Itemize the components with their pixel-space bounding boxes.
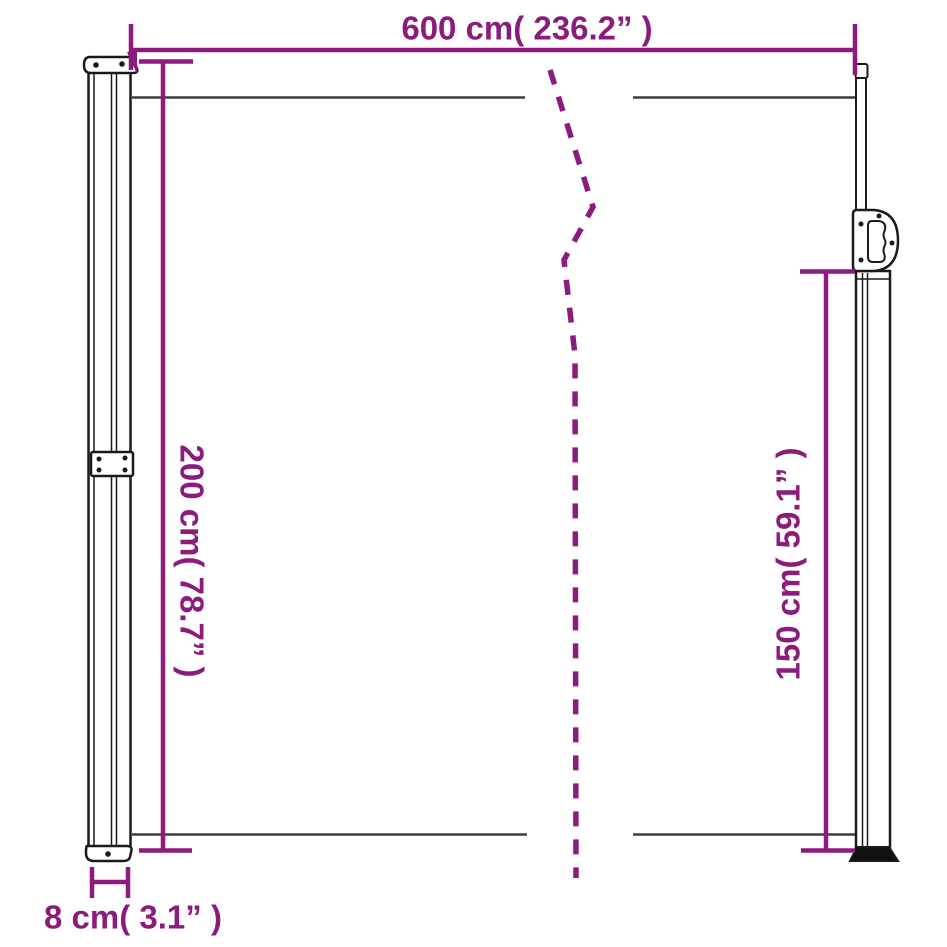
base-plate <box>850 847 898 861</box>
dimension-label-front-height: 150 cm( 59.1” ) <box>772 448 805 681</box>
handle-grip <box>868 221 886 262</box>
left-cassette-post <box>84 57 137 861</box>
front-pull-bar <box>850 64 898 861</box>
dimension-label-width: 600 cm( 236.2” ) <box>401 12 652 45</box>
dimension-diagram: 600 cm( 236.2” ) 200 cm( 78.7” ) 150 cm(… <box>0 0 947 947</box>
dim-depth <box>92 867 128 898</box>
dimension-label-height: 200 cm( 78.7” ) <box>176 445 209 678</box>
dimension-label-depth: 8 cm( 3.1” ) <box>44 901 222 934</box>
wall-bracket <box>91 452 133 476</box>
bar-top-cap <box>856 64 868 78</box>
dim-front-height <box>800 272 855 852</box>
break-line <box>550 70 593 878</box>
